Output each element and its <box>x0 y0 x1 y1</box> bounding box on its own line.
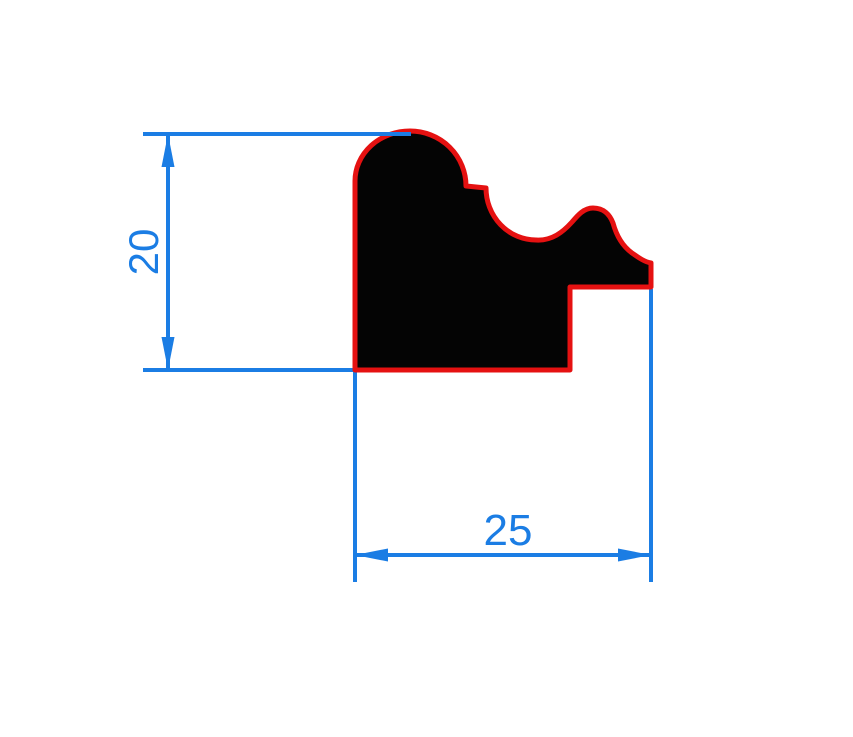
height-dimension: 20 <box>120 134 175 370</box>
height-arrowhead-down <box>162 337 175 370</box>
height-arrowhead-up <box>162 134 175 167</box>
width-dimension: 25 <box>355 506 651 562</box>
technical-drawing: 20 25 <box>0 0 853 737</box>
moulding-profile-shape <box>355 131 651 370</box>
width-arrowhead-right <box>618 549 651 562</box>
height-dimension-label: 20 <box>120 229 167 276</box>
width-arrowhead-left <box>355 549 388 562</box>
width-dimension-label: 25 <box>484 506 533 555</box>
drawing-canvas: 20 25 <box>0 0 853 737</box>
